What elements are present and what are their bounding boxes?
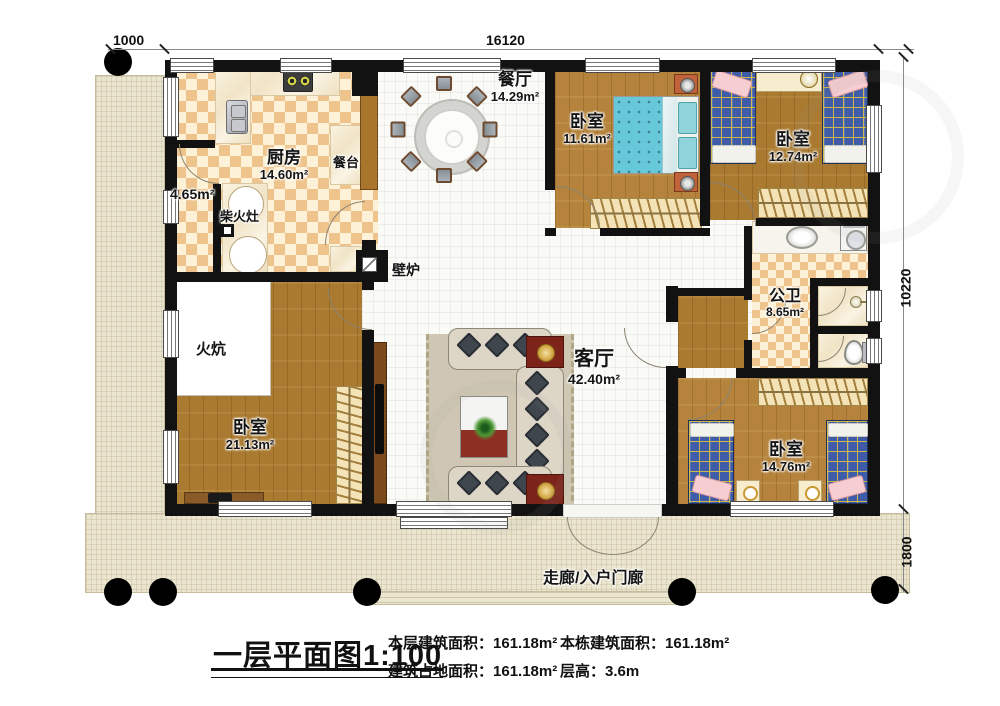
stat-footprint-area: 建筑占地面积：161.18m² bbox=[388, 660, 557, 681]
dining-chair bbox=[391, 122, 406, 138]
wall-bath-h2 bbox=[810, 326, 868, 334]
porch-column bbox=[871, 576, 899, 604]
nightstand bbox=[674, 172, 698, 192]
floor-plan-canvas: 厨房14.60m² 4.65m² 柴火灶 餐台 餐厅14.29m² 卧室11.6… bbox=[0, 0, 1000, 706]
window bbox=[752, 58, 836, 73]
wall-living-east-b bbox=[666, 366, 678, 504]
dining-label: 餐厅14.29m² bbox=[479, 70, 551, 104]
dim-house-width: 16120 bbox=[486, 32, 525, 48]
porch-column bbox=[104, 578, 132, 606]
twin-bed bbox=[688, 420, 734, 504]
double-bed bbox=[613, 96, 699, 174]
stat-story-height: 层高：3.6m bbox=[560, 660, 639, 681]
entry-porch-label: 走廊/入户门廊 bbox=[543, 564, 643, 588]
dining-chair bbox=[436, 76, 452, 91]
twin-bed bbox=[710, 66, 756, 164]
wall-bath-west-b bbox=[744, 340, 752, 368]
wall-hall-north bbox=[678, 288, 752, 296]
fireplace-opening bbox=[362, 257, 377, 272]
wardrobe-bedroom-bottomright bbox=[758, 378, 868, 406]
dining-chair bbox=[483, 122, 498, 138]
window bbox=[866, 290, 882, 322]
kang-label: 火炕 bbox=[196, 338, 226, 359]
entry-threshold bbox=[563, 504, 662, 518]
window bbox=[163, 430, 179, 484]
window bbox=[163, 310, 179, 358]
living-label: 客厅42.40m² bbox=[552, 348, 636, 387]
watermark bbox=[420, 380, 574, 534]
wall-bed1-south-b bbox=[600, 228, 710, 236]
nightstand bbox=[674, 74, 698, 94]
nightstand bbox=[798, 480, 822, 503]
window bbox=[730, 501, 834, 517]
serving-counter-label: 餐台 bbox=[333, 152, 359, 171]
stat-building-area: 本栋建筑面积：161.18m² bbox=[560, 632, 729, 653]
window bbox=[866, 338, 882, 364]
wall-living-east-a bbox=[666, 286, 678, 322]
tv-icon bbox=[375, 384, 384, 454]
fireplace-label: 壁炉 bbox=[392, 260, 420, 280]
wall-bed1-bed2 bbox=[700, 60, 710, 226]
wall-bed1-south-a bbox=[545, 228, 556, 236]
bedroom-left-label: 卧室21.13m² bbox=[212, 418, 288, 452]
kitchen-label: 厨房14.60m² bbox=[248, 148, 320, 182]
wall-kitchen-top-stub bbox=[352, 60, 378, 96]
kitchen-sink-icon bbox=[226, 100, 248, 134]
window bbox=[280, 58, 332, 73]
dim-house-height: 10220 bbox=[897, 269, 913, 308]
bedroom-top-label: 卧室11.61m² bbox=[551, 112, 623, 146]
watermark bbox=[790, 70, 964, 244]
stat-floor-area: 本层建筑面积：161.18m² bbox=[388, 632, 557, 653]
wall-bedroomleft-east-b bbox=[362, 330, 374, 504]
serving-counter-wood-edge bbox=[360, 93, 378, 190]
twin-bed bbox=[826, 420, 868, 504]
wood-stove-pot-2 bbox=[229, 236, 267, 274]
bathroom-sink-icon bbox=[786, 226, 818, 249]
wall-bed4-north-a bbox=[678, 368, 686, 378]
stove-corner-box-inner bbox=[224, 227, 231, 234]
nightstand bbox=[736, 480, 760, 503]
wall-bed4-north-b bbox=[736, 368, 870, 378]
wall-bath-h1 bbox=[810, 278, 868, 286]
wall-kitchen-south bbox=[165, 272, 378, 282]
porch-column bbox=[668, 578, 696, 606]
window bbox=[170, 58, 214, 73]
hall-floor bbox=[678, 296, 748, 368]
window bbox=[218, 501, 312, 517]
dining-chair bbox=[436, 168, 452, 183]
wall-bed2-south-a bbox=[700, 218, 710, 226]
wardrobe-bedroom-top bbox=[590, 198, 702, 229]
bedroom-bottomright-label: 卧室14.76m² bbox=[748, 440, 824, 474]
bath-label: 公卫8.65m² bbox=[752, 288, 818, 320]
toilet-icon bbox=[844, 340, 864, 365]
porch-column bbox=[104, 48, 132, 76]
dim-line-top bbox=[108, 49, 914, 50]
dim-porch-width: 1000 bbox=[113, 32, 144, 48]
window bbox=[585, 58, 660, 73]
pantry-area-label: 4.65m² bbox=[170, 186, 214, 202]
dim-porch-depth: 1800 bbox=[899, 536, 915, 567]
kang-bed-platform bbox=[169, 278, 271, 396]
cooktop-icon bbox=[283, 70, 313, 92]
porch-column bbox=[353, 578, 381, 606]
wood-stove-label: 柴火灶 bbox=[220, 206, 259, 225]
porch-front-step bbox=[367, 591, 683, 605]
window bbox=[163, 77, 179, 137]
porch-column bbox=[149, 578, 177, 606]
wardrobe-bedroom-left bbox=[336, 386, 363, 504]
